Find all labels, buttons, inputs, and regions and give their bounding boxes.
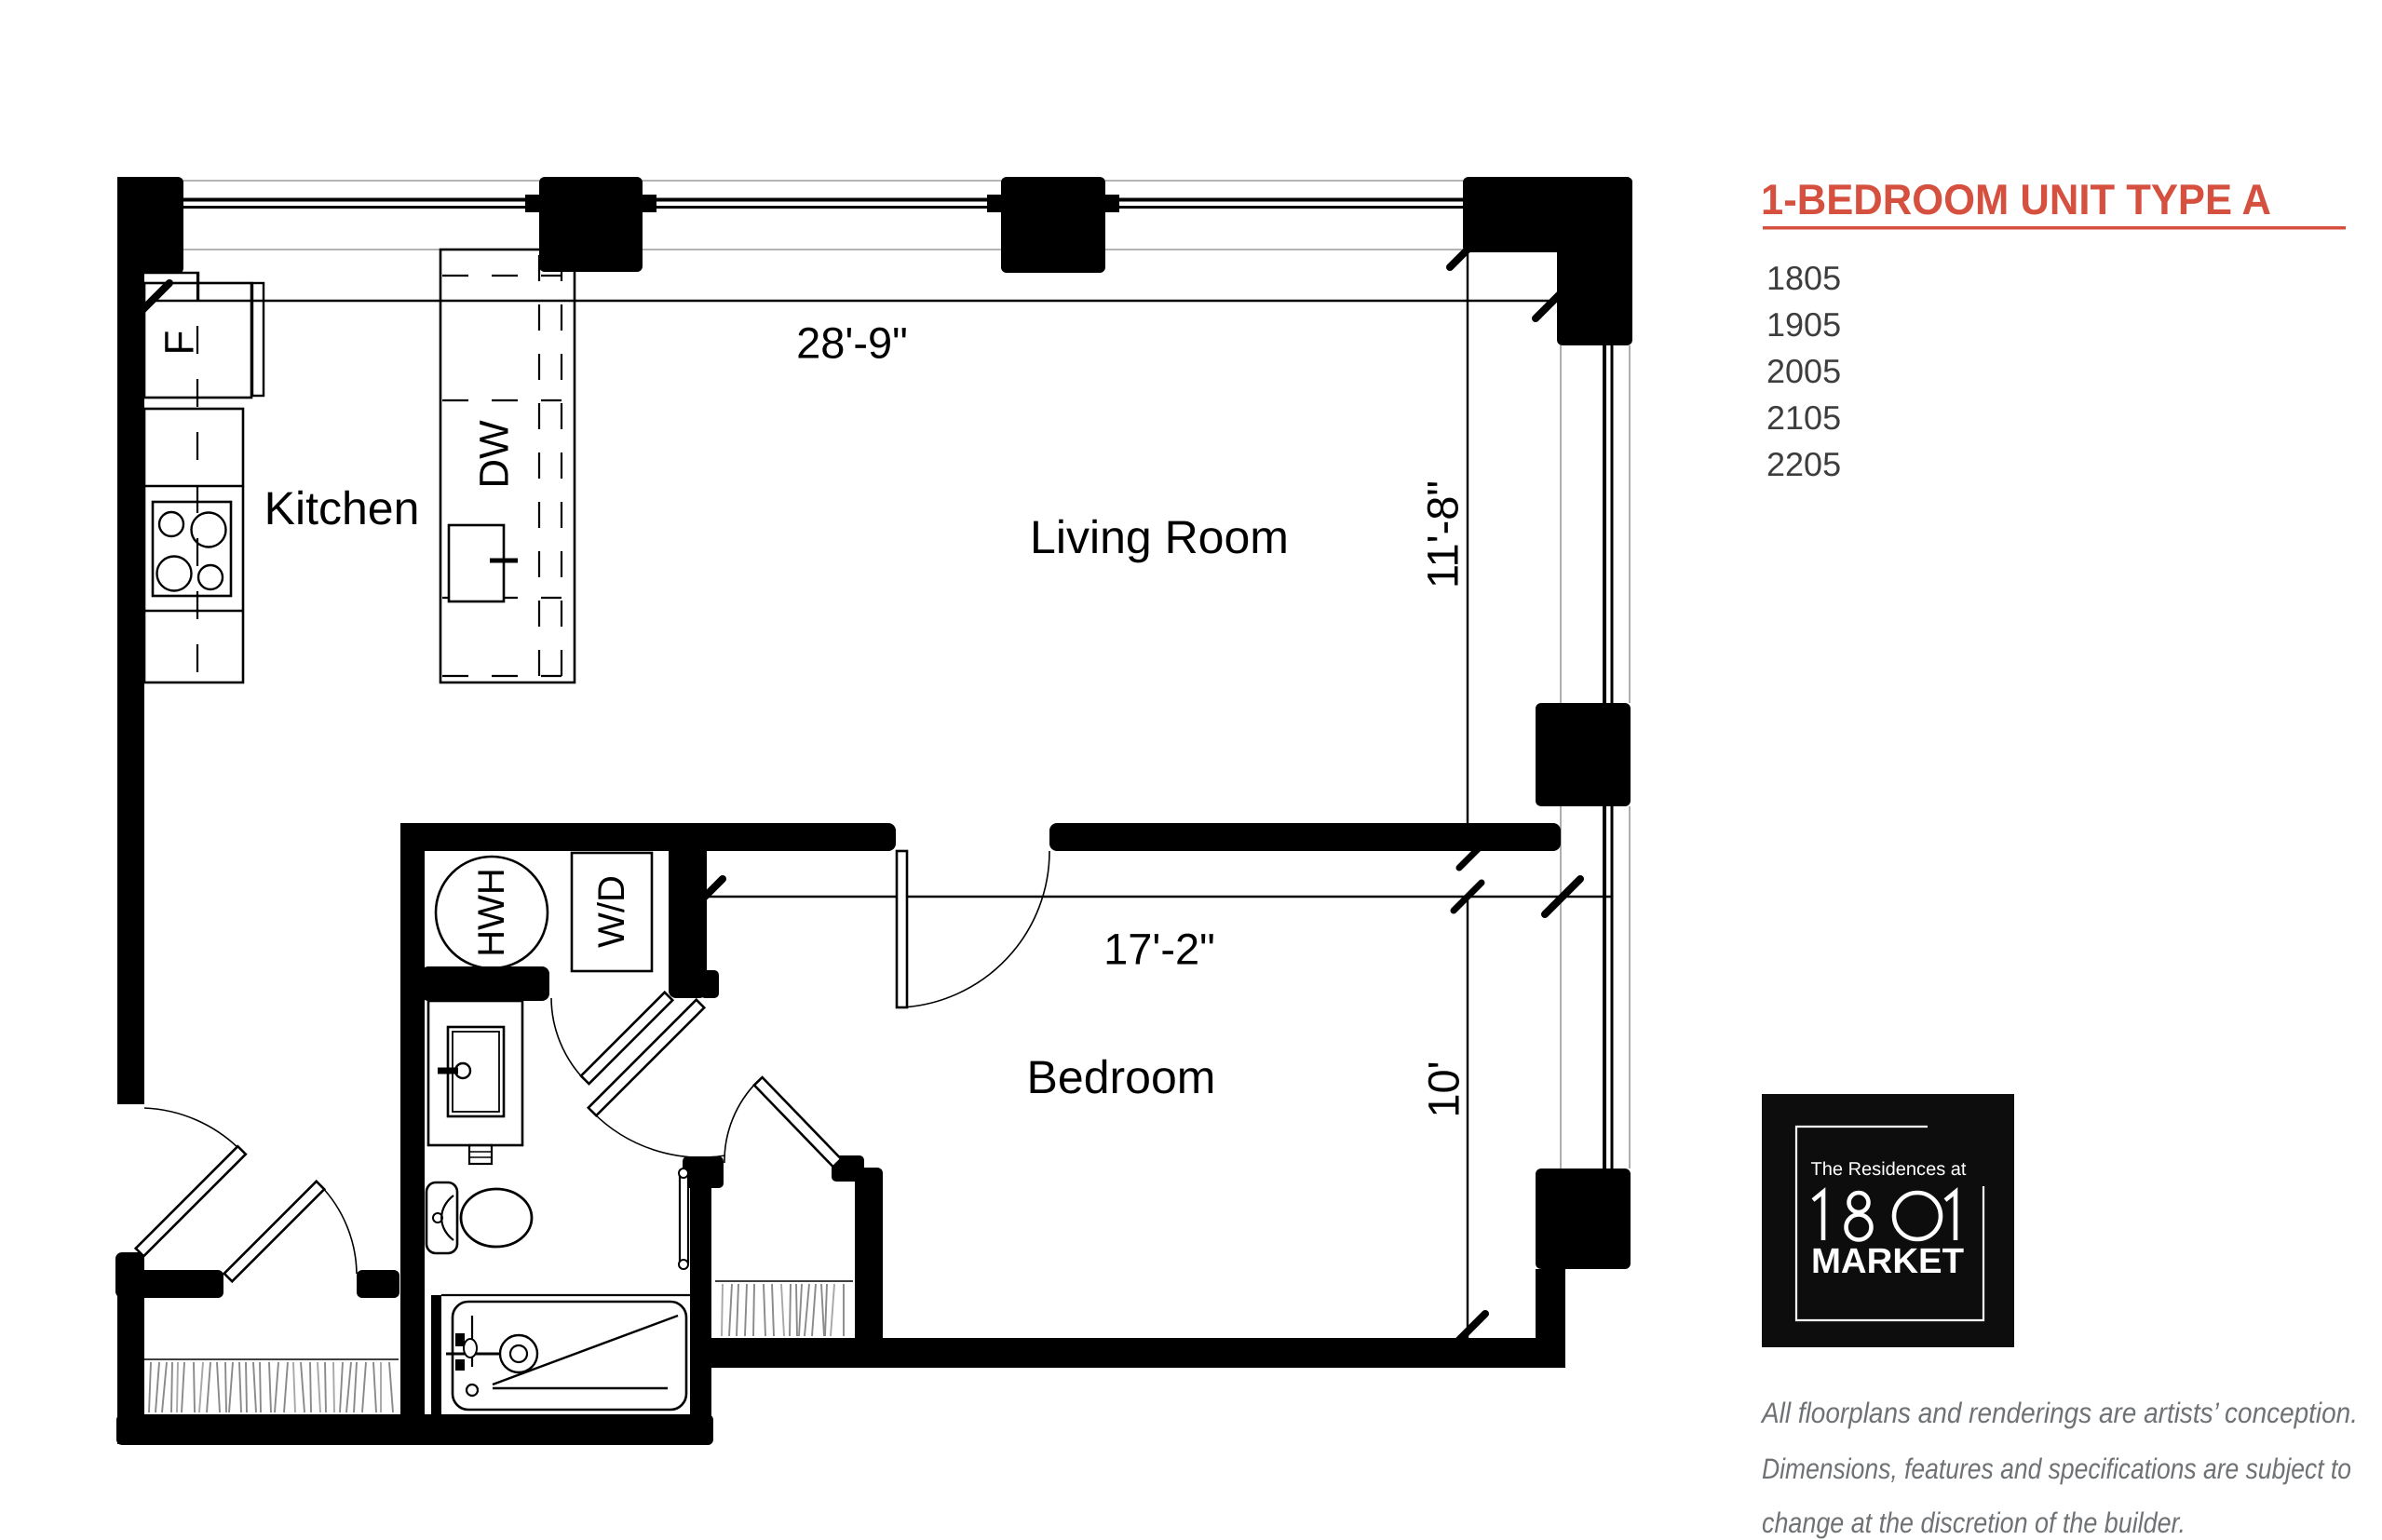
svg-text:DW: DW — [472, 420, 518, 489]
svg-text:11'-8": 11'-8" — [1418, 480, 1468, 588]
svg-text:Dimensions, features and speci: Dimensions, features and specifications … — [1762, 1452, 2351, 1485]
svg-text:Bedroom: Bedroom — [1027, 1051, 1216, 1103]
svg-text:2205: 2205 — [1766, 445, 1841, 483]
svg-text:All floorplans and renderings: All floorplans and renderings are artist… — [1760, 1397, 2358, 1429]
svg-text:2005: 2005 — [1766, 352, 1841, 390]
svg-text:Living Room: Living Room — [1030, 511, 1289, 563]
svg-text:W/D: W/D — [591, 875, 632, 948]
svg-text:F: F — [157, 331, 203, 356]
svg-text:change at the discretion of th: change at the discretion of the builder. — [1762, 1506, 2186, 1539]
svg-text:MARKET: MARKET — [1811, 1242, 1964, 1281]
svg-text:1-BEDROOM UNIT TYPE A: 1-BEDROOM UNIT TYPE A — [1761, 175, 2271, 223]
svg-text:Kitchen: Kitchen — [264, 482, 420, 534]
svg-text:2105: 2105 — [1766, 399, 1841, 437]
svg-text:17'-2": 17'-2" — [1103, 925, 1215, 974]
svg-text:HWH: HWH — [471, 868, 512, 957]
svg-text:The Residences at: The Residences at — [1811, 1159, 1967, 1180]
svg-text:1905: 1905 — [1766, 305, 1841, 344]
svg-text:1805: 1805 — [1766, 259, 1841, 297]
svg-text:28'-9": 28'-9" — [796, 318, 908, 368]
svg-text:10': 10' — [1419, 1060, 1468, 1117]
